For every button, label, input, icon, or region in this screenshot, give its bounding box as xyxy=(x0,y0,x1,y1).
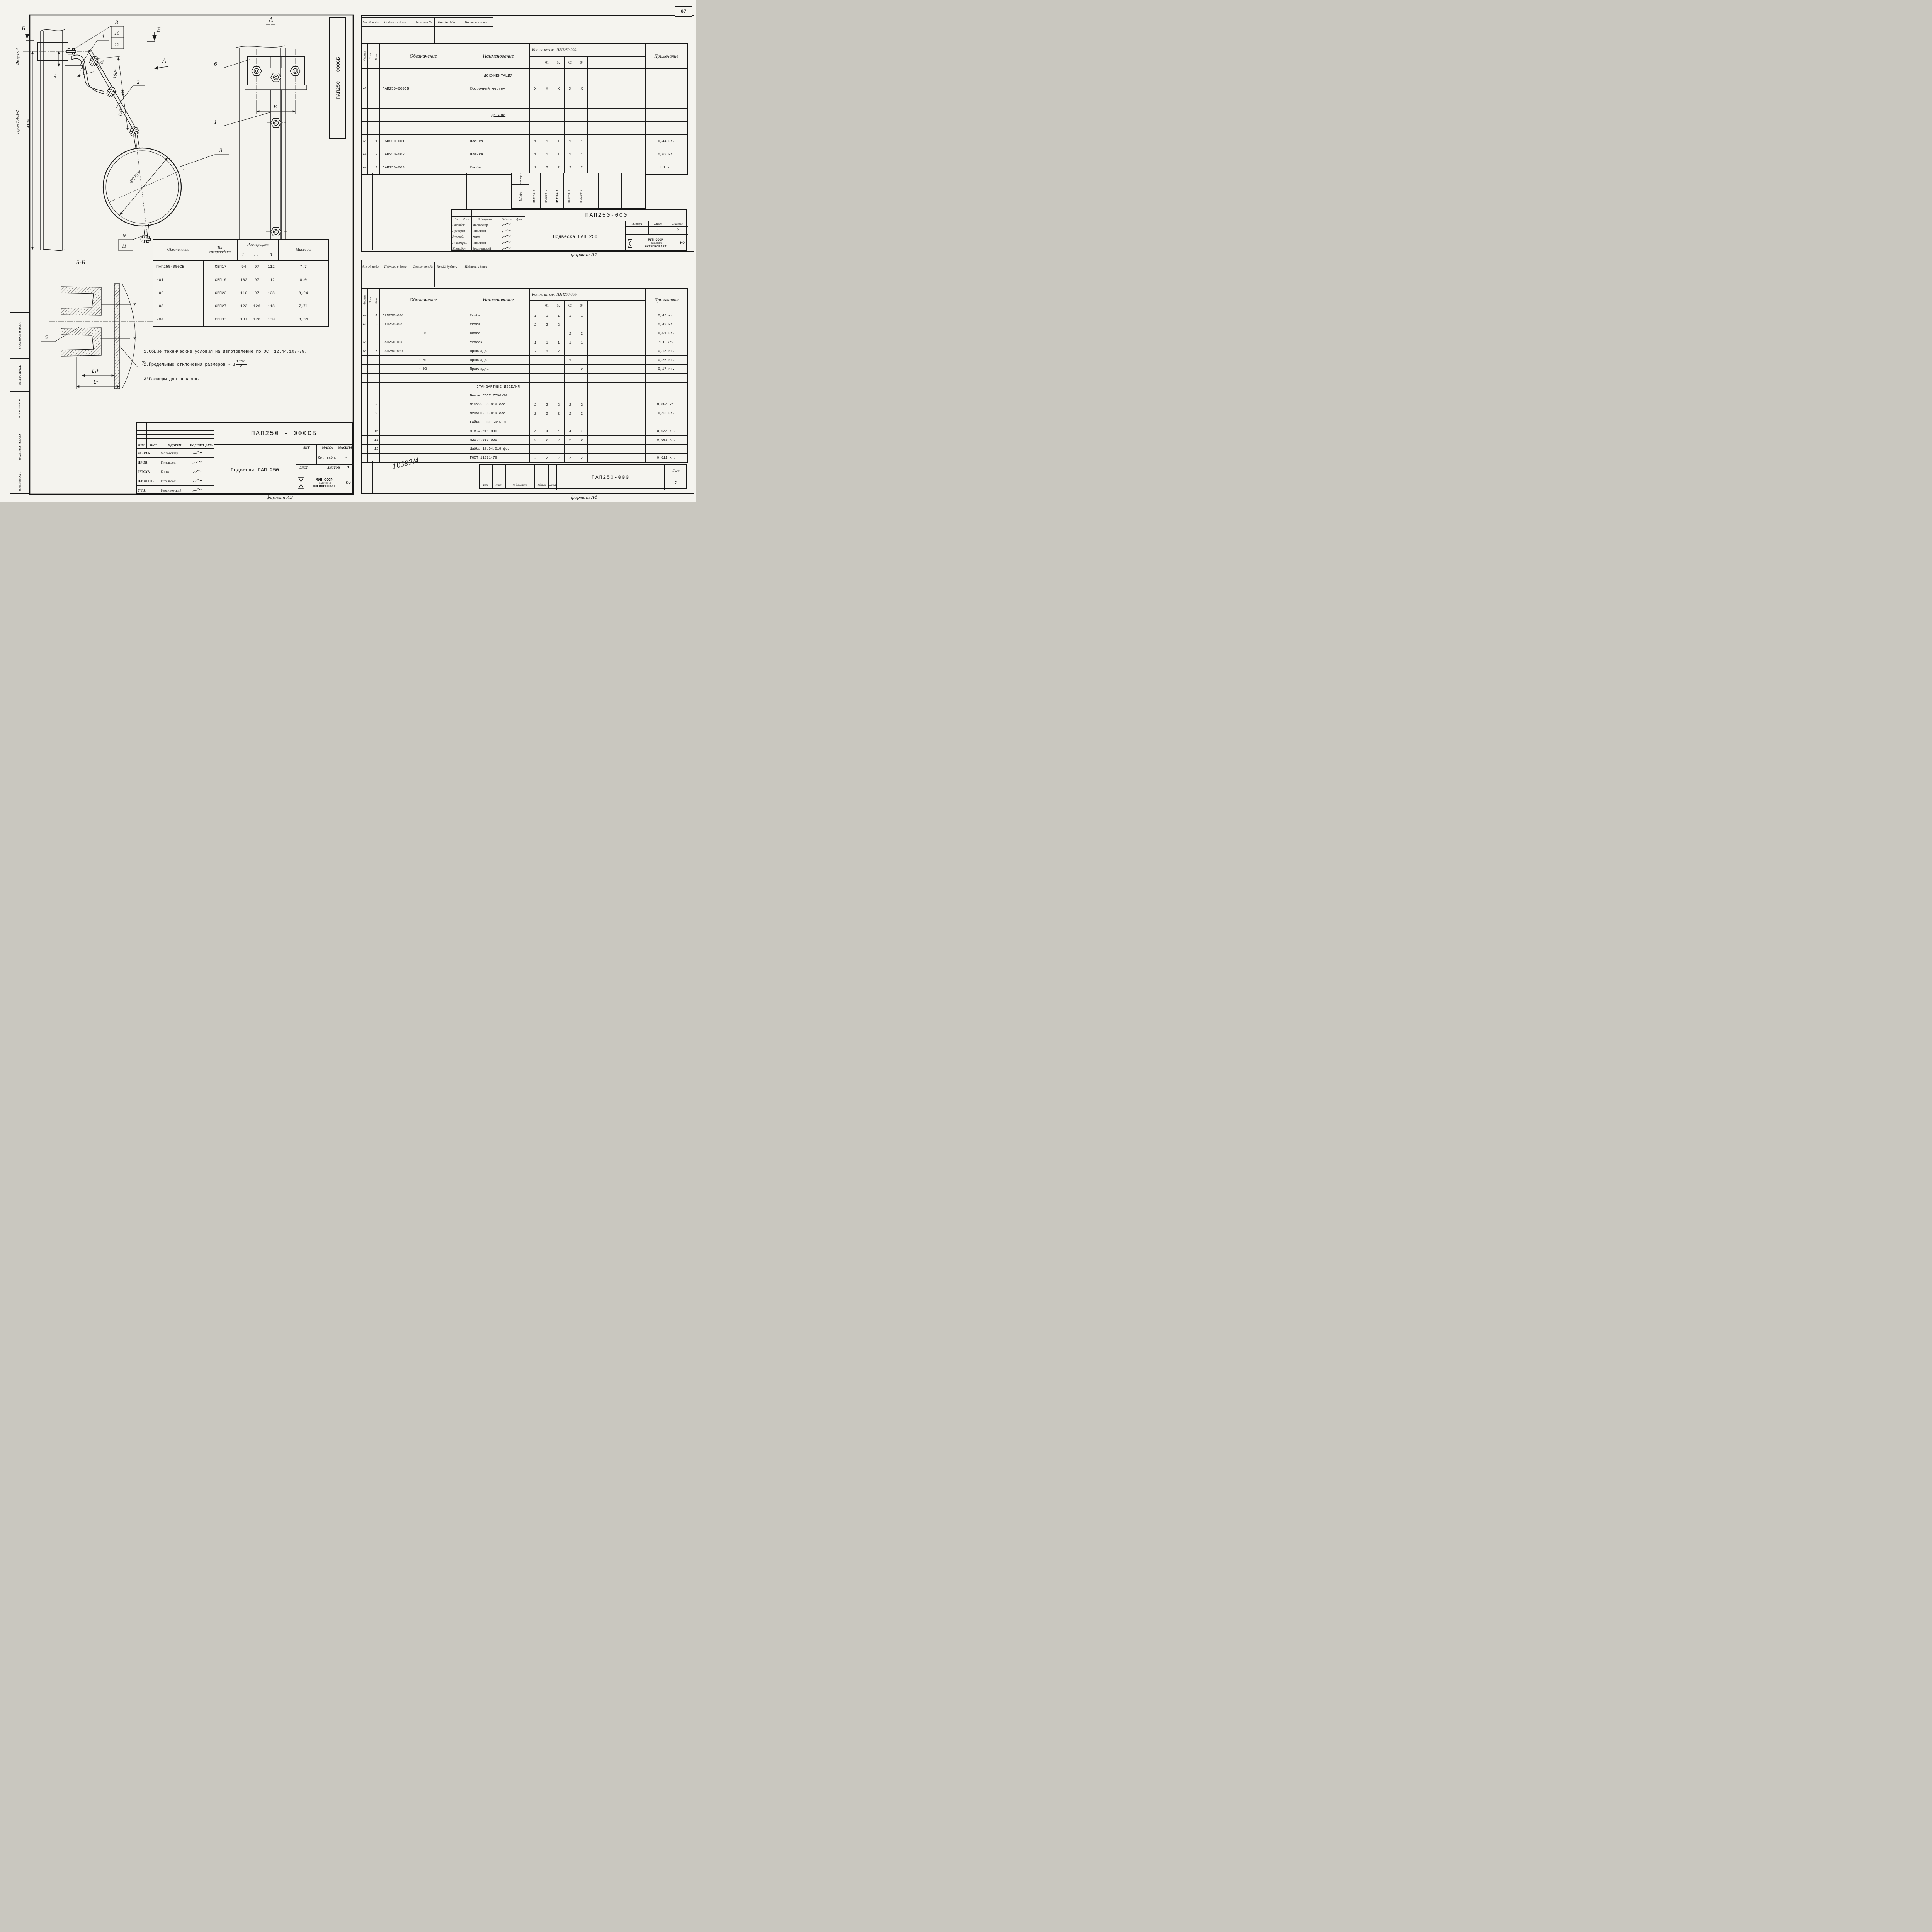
tb2-list-value: 2 xyxy=(665,477,688,490)
person-row: ПРОВ. Гительзон xyxy=(137,458,214,467)
tb-a3-title: Подвеска ПАП 250 xyxy=(214,445,296,495)
cell-format xyxy=(362,109,368,121)
signature-icon xyxy=(192,460,202,465)
dim-50-label: 50 xyxy=(80,68,85,72)
cell-qty: 2 xyxy=(565,356,576,364)
cell-qty xyxy=(553,383,565,391)
person-row: РАЗРАБ. Молокошер xyxy=(137,449,214,458)
params-massa: 7,71 xyxy=(279,300,328,313)
h-poz: Позиц. xyxy=(375,296,378,304)
cell-zona xyxy=(368,400,373,409)
cell-qty xyxy=(530,374,541,382)
params-B: 130 xyxy=(264,313,279,326)
cell-qty xyxy=(576,347,588,355)
cell-obozn xyxy=(380,109,467,121)
person-row: Разработ. Молокошер xyxy=(452,222,525,228)
callout-9-label: 9 xyxy=(123,233,126,239)
cell-qty xyxy=(530,95,541,108)
cell-poz xyxy=(373,95,380,108)
spec-row xyxy=(362,374,687,383)
dim-100-label: 100* xyxy=(112,69,119,79)
cell-naim: Скоба xyxy=(467,161,530,174)
cell-poz xyxy=(373,391,380,400)
params-table: Обозначение Типспецпрофиля Размеры,мм L … xyxy=(153,239,329,327)
params-massa: 8,0 xyxy=(279,274,328,287)
cell-zona xyxy=(368,82,373,95)
strip-cell: Инв. № дубл. xyxy=(435,18,459,27)
params-L1: 97 xyxy=(250,274,264,287)
params-massa: 8,24 xyxy=(279,287,328,300)
cell-naim: Скоба xyxy=(467,329,530,338)
shifr-litera-block: Литера Шифр ПАП250-1 ПАП250-2 ПАП250-3 П… xyxy=(511,173,646,209)
cell-qty: 2 xyxy=(565,436,576,444)
cell-naim: Прокладка xyxy=(467,365,530,373)
person-name: Молокошер xyxy=(472,222,500,228)
cell-qty xyxy=(541,445,553,453)
cell-obozn xyxy=(380,409,467,418)
cell-zona xyxy=(368,445,373,453)
stamp-cell: ПОДПИСЬ И ДАТА xyxy=(10,313,29,359)
params-massa: 7,7 xyxy=(279,261,328,274)
person-name: Гительзон xyxy=(160,458,191,467)
cell-qty: 2 xyxy=(553,409,565,418)
signature-icon xyxy=(192,488,202,493)
person-signature xyxy=(190,467,204,476)
cell-obozn: ПАП250-004 xyxy=(380,311,467,320)
cell-poz xyxy=(373,374,380,382)
cell-qty xyxy=(541,356,553,364)
cell-qty xyxy=(576,122,588,134)
tb2-doc-number: ПАП250-000 xyxy=(557,465,665,490)
cell-zona xyxy=(368,391,373,400)
spec-row: А4 1 ПАП250-001 Планка 1 1 1 1 1 0,44 кг… xyxy=(362,135,687,148)
tb-col-data: ДАТА xyxy=(204,442,214,448)
cell-format: А3 xyxy=(362,320,368,329)
spec-row: А3 5 ПАП250-005 Скоба 2 2 2 0,43 кг. xyxy=(362,320,687,329)
callout-11-label: 11 xyxy=(122,243,126,249)
cell-poz: 3 xyxy=(373,161,380,174)
mup-logo-icon xyxy=(628,239,632,248)
tb-col-izm: ИЗМ. xyxy=(137,442,147,448)
tb-listov-value: 1 xyxy=(342,465,354,471)
spec-row: А4 4 ПАП250-004 Скоба 1 1 1 1 1 0,45 кг. xyxy=(362,311,687,320)
org-ko: КО xyxy=(342,471,354,495)
cell-qty xyxy=(553,374,565,382)
cell-qty xyxy=(553,365,565,373)
cell-format xyxy=(362,409,368,418)
cell-obozn: - 02 xyxy=(380,365,467,373)
cell-qty xyxy=(541,374,553,382)
person-signature xyxy=(499,234,514,240)
cell-format xyxy=(362,445,368,453)
cell-format: А4 xyxy=(362,148,368,161)
cell-qty: 4 xyxy=(541,427,553,435)
cell-qty xyxy=(530,391,541,400)
cell-qty xyxy=(565,365,576,373)
params-row: ПАП250-000СБ СВП17 94 97 112 7,7 xyxy=(153,261,328,274)
spec-row: - 01 Прокладка 2 0,26 кг. xyxy=(362,356,687,365)
cell-naim: ДЕТАЛИ xyxy=(467,109,530,121)
person-name: Коток xyxy=(472,234,500,240)
cell-naim xyxy=(467,374,530,382)
params-obozn: -03 xyxy=(153,300,204,313)
cell-qty xyxy=(576,95,588,108)
cell-format xyxy=(362,356,368,364)
cell-prim: 1,8 кг. xyxy=(646,338,687,347)
cell-prim xyxy=(646,383,687,391)
cell-prim: 0,084 кг. xyxy=(646,400,687,409)
signature-icon xyxy=(502,247,511,251)
spec-sheet-1: Инв. № подл. Подпись и дата Взам. инв.№ … xyxy=(361,15,694,252)
cell-qty xyxy=(576,418,588,427)
spec-row: А4 7 ПАП250-007 Прокладка - 2 2 0,13 кг. xyxy=(362,347,687,356)
cell-zona xyxy=(368,329,373,338)
cell-qty: - xyxy=(530,347,541,355)
cell-format: А3 xyxy=(362,82,368,95)
cell-poz: 9 xyxy=(373,409,380,418)
person-role: РУКОВ. xyxy=(137,467,160,476)
org-line1: МУП СССР xyxy=(316,478,332,482)
cell-qty xyxy=(565,109,576,121)
cell-zona xyxy=(368,148,373,161)
h-exec: - xyxy=(530,301,541,311)
params-L: 94 xyxy=(238,261,250,274)
person-signature xyxy=(499,240,514,245)
cell-qty xyxy=(530,445,541,453)
person-signature xyxy=(499,222,514,228)
strip-cell: Инв.№ дублик. xyxy=(435,262,459,271)
params-B: 118 xyxy=(264,300,279,313)
spec-row: Болты ГОСТ 7796-70 xyxy=(362,391,687,400)
cell-qty: 1 xyxy=(565,148,576,161)
cell-poz xyxy=(373,329,380,338)
h-kol: Кол. на исполн. ПАП250-000- xyxy=(530,289,646,301)
person-role: РАЗРАБ. xyxy=(137,449,160,457)
person-name: Гительзон xyxy=(472,228,500,233)
tb1-listov-label: Листов xyxy=(667,221,688,226)
spec-row: А4 3 ПАП250-003 Скоба 2 2 2 2 2 1,1 кг. xyxy=(362,161,687,174)
cell-zona xyxy=(368,95,373,108)
cell-format xyxy=(362,427,368,435)
stamp-cell: ИНВ.№ПОДЛ. xyxy=(10,469,29,493)
cell-qty: 2 xyxy=(541,347,553,355)
dim-B-label: В xyxy=(274,104,277,109)
cell-prim: 0,17 кг. xyxy=(646,365,687,373)
cell-qty: 2 xyxy=(530,454,541,462)
tb-a3-doc-number: ПАП250 - 000СБ xyxy=(214,423,354,445)
cell-poz: 12 xyxy=(373,445,380,453)
spec-row: 11 М20.4.019 фос 2 2 2 2 2 0,063 кг. xyxy=(362,436,687,445)
org-ko: КО xyxy=(677,235,688,252)
spec1-ink-strip: Инв. № подл. Подпись и дата Взам. инв.№ … xyxy=(361,17,493,43)
cell-obozn: - 01 xyxy=(380,329,467,338)
cell-prim: 0,26 кг. xyxy=(646,356,687,364)
cell-qty xyxy=(541,69,553,82)
cell-obozn xyxy=(380,445,467,453)
margin-vypusk: Выпуск 4 xyxy=(15,43,20,70)
cell-qty: 1 xyxy=(565,311,576,320)
top-plank-side xyxy=(23,43,92,60)
shifr-value: ПАП250-2 xyxy=(545,190,548,203)
cell-zona xyxy=(368,409,373,418)
spec-row: ДОКУМЕНТАЦИЯ xyxy=(362,69,687,82)
strip-cell: Подпись и дата xyxy=(379,18,412,27)
signature-icon xyxy=(192,451,202,456)
cell-format xyxy=(362,374,368,382)
cell-poz xyxy=(373,69,380,82)
params-L1: 97 xyxy=(250,261,264,274)
cell-obozn: ПАП250-007 xyxy=(380,347,467,355)
cell-format xyxy=(362,400,368,409)
cell-naim: Планка xyxy=(467,135,530,148)
cell-qty xyxy=(553,69,565,82)
params-L1: 126 xyxy=(250,300,264,313)
cell-poz: 4 xyxy=(373,311,380,320)
h-naim: Наименование xyxy=(467,44,530,68)
cell-naim: ДОКУМЕНТАЦИЯ xyxy=(467,69,530,82)
cell-qty: 2 xyxy=(576,409,588,418)
params-rows: ПАП250-000СБ СВП17 94 97 112 7,7 -01 СВП… xyxy=(153,261,328,327)
cell-qty: 2 xyxy=(553,400,565,409)
cell-qty xyxy=(553,391,565,400)
signature-icon xyxy=(502,229,511,233)
margin-stamp-column: ПОДПИСЬ И ДАТА ИНВ.№ ДУБЛ. ВЗАМ.ИНВ.№ ПО… xyxy=(10,312,30,494)
margin-seriya: серия 7.401-2 xyxy=(15,103,20,141)
cell-prim: 0,63 кг. xyxy=(646,148,687,161)
cell-qty: X xyxy=(541,82,553,95)
person-name: Коток xyxy=(160,467,191,476)
cell-poz xyxy=(373,356,380,364)
vertical-doc-label: ПАП250 - 000СБ xyxy=(335,57,341,99)
person-role: Н.КОНТР. xyxy=(137,476,160,485)
cell-qty: 2 xyxy=(553,436,565,444)
tb-massa-label: МАССА xyxy=(317,445,338,451)
callout-6-label: 6 xyxy=(214,61,217,67)
person-signature xyxy=(499,228,514,233)
view-a-arrow xyxy=(155,66,168,68)
cell-zona xyxy=(368,374,373,382)
cell-qty: 1 xyxy=(576,148,588,161)
cell-obozn: ПАП250-000СБ xyxy=(380,82,467,95)
cell-zona xyxy=(368,122,373,134)
cell-zona xyxy=(368,320,373,329)
callout-12: 12 xyxy=(114,42,120,48)
callout-1 xyxy=(210,112,271,126)
tb1-list-value: 1 xyxy=(649,227,667,234)
cell-prim xyxy=(646,374,687,382)
params-tip: СВП33 xyxy=(204,313,238,326)
cell-qty xyxy=(565,122,576,134)
title-block-a3: ИЗМ. ЛИСТ №ДОКУМ. ПОДПИСЬ ДАТА РАЗРАБ. М… xyxy=(136,422,353,494)
cell-prim xyxy=(646,109,687,121)
format-a4-note-bottom: формат А4 xyxy=(571,495,597,500)
cell-poz: 2 xyxy=(373,148,380,161)
cell-naim: ГОСТ 11371-78 xyxy=(467,454,530,462)
signature-icon xyxy=(502,235,511,239)
cell-naim: Болты ГОСТ 7796-70 xyxy=(467,391,530,400)
cell-poz xyxy=(373,122,380,134)
spec2-ink-strip: Инв. № подл. Подпись и дата Взамен инв.№… xyxy=(361,262,493,287)
cell-poz: 8 xyxy=(373,400,380,409)
cell-qty xyxy=(541,95,553,108)
spec2-table: Формат Зона Позиц. Обозначение Наименова… xyxy=(361,288,688,463)
tb2-col: Подпись xyxy=(535,481,549,489)
cell-zona xyxy=(368,427,373,435)
cell-format: А4 xyxy=(362,135,368,148)
cell-qty xyxy=(541,365,553,373)
cell-prim: 0,011 кг. xyxy=(646,454,687,462)
person-row: Н.контрол. Гительзон xyxy=(452,240,525,246)
cell-qty xyxy=(576,383,588,391)
cell-poz: 10 xyxy=(373,427,380,435)
cell-format: А4 xyxy=(362,338,368,347)
section-bb-title: Б-Б xyxy=(75,259,85,266)
tb-listov-label: ЛИСТОВ xyxy=(325,465,342,471)
cell-obozn xyxy=(380,383,467,391)
tb2-col: Изм. xyxy=(480,481,493,489)
stamp-cell: ПОДПИСЬ И ДАТА xyxy=(10,425,29,469)
cell-prim xyxy=(646,122,687,134)
cell-qty: 2 xyxy=(576,161,588,174)
tb2-col: Лист xyxy=(493,481,506,489)
person-signature xyxy=(190,486,204,495)
bb-profiles xyxy=(49,284,153,389)
cell-prim: 0,063 кг. xyxy=(646,436,687,444)
cell-qty: 4 xyxy=(565,427,576,435)
cell-zona xyxy=(368,365,373,373)
cell-prim: 0,16 кг. xyxy=(646,409,687,418)
cell-format xyxy=(362,436,368,444)
cell-qty: 2 xyxy=(565,454,576,462)
cell-qty xyxy=(565,383,576,391)
tb1-col: Изм. xyxy=(452,217,461,222)
params-L1: 126 xyxy=(250,313,264,326)
params-row: -01 СВП19 102 97 112 8,0 xyxy=(153,274,328,287)
cell-zona xyxy=(368,383,373,391)
cell-poz: 11 xyxy=(373,436,380,444)
cell-naim: СТАНДАРТНЫЕ ИЗДЕЛИЯ xyxy=(467,383,530,391)
cell-poz xyxy=(373,109,380,121)
person-name: Гительзон xyxy=(160,476,191,485)
cell-format xyxy=(362,391,368,400)
person-row: Проверил Гительзон xyxy=(452,228,525,234)
cell-qty xyxy=(530,329,541,338)
tb-col-list: ЛИСТ xyxy=(147,442,160,448)
person-name: Гительзон xyxy=(472,240,500,245)
cell-qty xyxy=(576,69,588,82)
h-kol: Кол. на исполн. ПАП250-000- xyxy=(530,44,646,57)
cell-qty xyxy=(530,109,541,121)
h-poz: Позиц. xyxy=(375,52,378,60)
cell-qty: 2 xyxy=(530,436,541,444)
tb-a3-people: РАЗРАБ. Молокошер ПРОВ. Гительзон РУКОВ. xyxy=(137,449,214,495)
cell-obozn xyxy=(380,374,467,382)
h-zona: Зона xyxy=(369,297,372,303)
person-signature xyxy=(190,449,204,457)
cell-qty: 2 xyxy=(530,161,541,174)
cell-poz: 7 xyxy=(373,347,380,355)
tb-masshtab-value: - xyxy=(338,451,354,464)
cell-obozn: ПАП250-003 xyxy=(380,161,467,174)
cell-qty: 2 xyxy=(576,436,588,444)
h-exec: 02 xyxy=(553,57,565,68)
person-name: Молокошер xyxy=(160,449,191,457)
spec-sheet-2: Инв. № подл. Подпись и дата Взамен инв.№… xyxy=(361,260,694,494)
cell-obozn: - 01 xyxy=(380,356,467,364)
spec2-rows: А4 4 ПАП250-004 Скоба 1 1 1 1 1 0,45 кг.… xyxy=(362,311,687,463)
spec1-header: Формат Зона Позиц. Обозначение Наименова… xyxy=(362,44,687,69)
cell-qty: 2 xyxy=(565,329,576,338)
cell-zona xyxy=(368,356,373,364)
cell-poz xyxy=(373,383,380,391)
cell-qty xyxy=(565,374,576,382)
strip-cell: Подпись и дата xyxy=(459,262,493,271)
cell-naim: М20.4.019 фос xyxy=(467,436,530,444)
cell-qty: 2 xyxy=(530,409,541,418)
org-line3: ЮЖГИПРОШАХТ xyxy=(313,485,335,488)
strip-cell: Инв. № подл. xyxy=(362,18,379,27)
cell-poz: 6 xyxy=(373,338,380,347)
cell-qty xyxy=(576,356,588,364)
h-exec: 04 xyxy=(576,301,588,311)
person-signature xyxy=(190,458,204,467)
dim-50 xyxy=(77,72,94,76)
section-b-right-label: Б xyxy=(156,27,161,33)
column-beam xyxy=(41,29,65,251)
person-role: Разработ. xyxy=(452,222,472,228)
cell-obozn xyxy=(380,418,467,427)
cell-prim: 0,44 кг. xyxy=(646,135,687,148)
params-L: 102 xyxy=(238,274,250,287)
cell-naim: Планка xyxy=(467,148,530,161)
params-obozn: ПАП250-000СБ xyxy=(153,261,204,274)
tb2-col: Дата xyxy=(549,481,556,489)
dim-412-label: 412* xyxy=(26,119,31,128)
tb1-title: Подвеска ПАП 250 xyxy=(525,221,626,252)
params-tip: СВП17 xyxy=(204,261,238,274)
spec2-header: Формат Зона Позиц. Обозначение Наименова… xyxy=(362,289,687,311)
cell-prim xyxy=(646,391,687,400)
spec-row: Гайки ГОСТ 5915-70 xyxy=(362,418,687,427)
cell-qty xyxy=(553,329,565,338)
params-tip: СВП22 xyxy=(204,287,238,300)
cell-zona xyxy=(368,135,373,148)
h-prim: Примечание xyxy=(646,44,687,68)
drawing-page: ПАП250 - 000СБ xyxy=(0,0,696,502)
shifr-value: ПАП250-4 xyxy=(568,190,571,203)
cell-poz xyxy=(373,418,380,427)
signature-icon xyxy=(502,223,511,227)
person-row: РУКОВ. Коток xyxy=(137,467,214,476)
h-exec: 01 xyxy=(541,57,553,68)
cell-qty: 1 xyxy=(553,135,565,148)
cell-qty: X xyxy=(576,82,588,95)
strip-cell: Инв. № подл. xyxy=(362,262,379,271)
cell-naim: Скоба xyxy=(467,320,530,329)
h-obozn: Обозначение xyxy=(380,44,467,68)
org-line3: ЮЖГИПРОШАХТ xyxy=(645,245,666,248)
cell-qty xyxy=(565,391,576,400)
cell-qty: 4 xyxy=(576,427,588,435)
cell-obozn xyxy=(380,122,467,134)
spec1-table: Формат Зона Позиц. Обозначение Наименова… xyxy=(361,43,688,175)
tb1-litera-label: Литера xyxy=(626,221,649,226)
mup-logo-icon xyxy=(298,477,304,489)
cell-prim xyxy=(646,95,687,108)
cell-qty: 2 xyxy=(553,454,565,462)
stamp-cell: ИНВ.№ ДУБЛ. xyxy=(10,359,29,392)
cell-qty xyxy=(530,122,541,134)
